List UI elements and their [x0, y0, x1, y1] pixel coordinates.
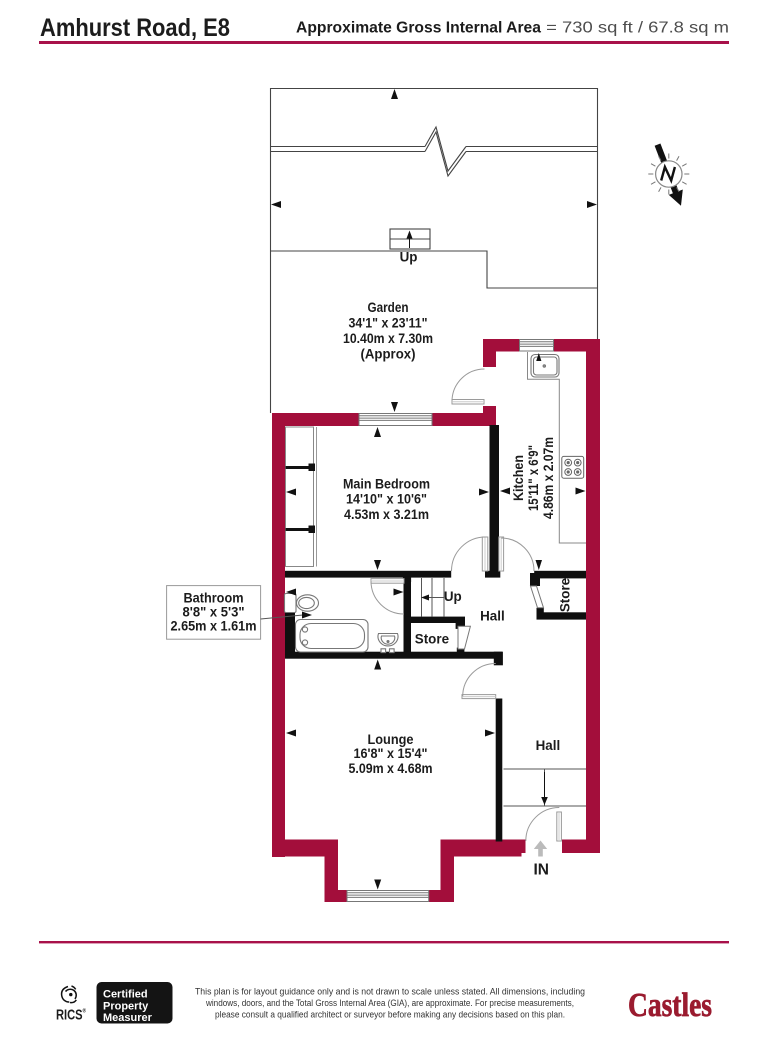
svg-text:15'11" x 6'9": 15'11" x 6'9" — [526, 445, 541, 511]
svg-text:10.40m x 7.30m: 10.40m x 7.30m — [343, 331, 433, 346]
svg-text:(Approx): (Approx) — [361, 347, 416, 362]
svg-text:Property: Property — [103, 1000, 149, 1012]
svg-text:RICS®: RICS® — [56, 1008, 86, 1024]
svg-text:Amhurst Road, E8: Amhurst Road, E8 — [40, 14, 230, 42]
svg-text:Up: Up — [400, 250, 418, 265]
svg-text:Hall: Hall — [536, 738, 561, 753]
svg-text:Kitchen: Kitchen — [511, 455, 526, 501]
svg-text:8'8" x 5'3": 8'8" x 5'3" — [183, 605, 245, 620]
svg-text:4.86m x 2.07m: 4.86m x 2.07m — [541, 437, 556, 519]
svg-text:4.53m x 3.21m: 4.53m x 3.21m — [344, 507, 429, 522]
svg-text:Bathroom: Bathroom — [184, 591, 244, 606]
svg-text:Store: Store — [415, 632, 449, 647]
svg-text:This plan is for layout guidan: This plan is for layout guidance only an… — [195, 987, 585, 997]
svg-text:2.65m x 1.61m: 2.65m x 1.61m — [171, 619, 257, 634]
svg-text:Hall: Hall — [480, 609, 505, 624]
svg-text:Lounge: Lounge — [368, 732, 414, 747]
svg-text:14'10" x 10'6": 14'10" x 10'6" — [346, 492, 427, 507]
svg-text:Up: Up — [444, 589, 462, 604]
svg-text:Store: Store — [558, 578, 573, 612]
svg-text:Measurer: Measurer — [103, 1012, 153, 1024]
svg-text:IN: IN — [533, 862, 549, 879]
svg-text:Main Bedroom: Main Bedroom — [343, 477, 430, 492]
svg-text:34'1" x 23'11": 34'1" x 23'11" — [349, 316, 428, 331]
svg-text:Approximate Gross Internal Are: Approximate Gross Internal Area = 730 sq… — [296, 20, 729, 37]
svg-text:Garden: Garden — [368, 300, 409, 315]
svg-text:windows, doors, and the Total: windows, doors, and the Total Gross Inte… — [205, 998, 574, 1008]
svg-text:please consult a qualified arc: please consult a qualified architect or … — [215, 1010, 565, 1020]
svg-text:Castles: Castles — [628, 987, 712, 1024]
svg-text:16'8" x 15'4": 16'8" x 15'4" — [354, 746, 428, 761]
svg-text:Certified: Certified — [103, 988, 148, 1000]
svg-text:5.09m x 4.68m: 5.09m x 4.68m — [349, 761, 433, 776]
